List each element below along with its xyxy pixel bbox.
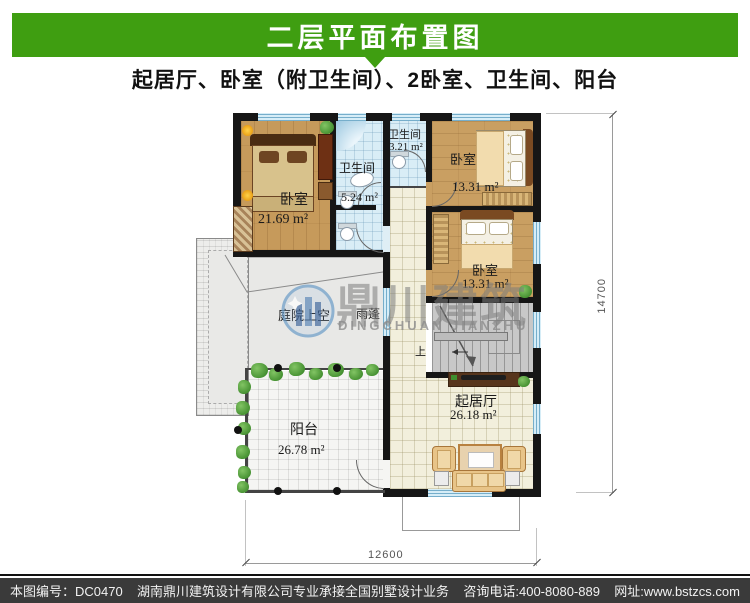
armchair xyxy=(502,446,526,472)
bedroom2-area: 13.31 m² xyxy=(452,179,499,195)
desk-1 xyxy=(318,182,333,200)
canopy-label: 雨蓬 xyxy=(356,305,380,322)
wardrobe-3 xyxy=(433,214,449,264)
armchair xyxy=(432,446,456,472)
column-dot xyxy=(333,487,341,495)
tv-cabinet xyxy=(448,372,520,387)
column-dot xyxy=(274,364,282,372)
bedroom2-label: 卧室 xyxy=(450,149,476,168)
bath2-label: 卫生间 xyxy=(388,126,421,142)
floor-plan-page: 二层平面布置图 起居厅、卧室（附卫生间）、2卧室、卫生间、阳台 xyxy=(0,0,750,603)
balcony-label: 阳台 xyxy=(290,419,318,439)
living-area: 26.18 m² xyxy=(450,407,497,423)
column-dot xyxy=(333,364,341,372)
balcony-area: 26.78 m² xyxy=(278,442,325,458)
bath1-label: 卫生间 xyxy=(339,159,375,176)
lamp-icon xyxy=(242,190,253,201)
sofa xyxy=(452,470,506,492)
bedroom1-area: 21.69 m² xyxy=(258,212,308,228)
bath2-area: 3.21 m² xyxy=(389,141,423,153)
wardrobe-1 xyxy=(318,134,333,180)
side-table xyxy=(434,471,449,486)
bedroom3-area: 13.31 m² xyxy=(462,276,509,292)
column-dot xyxy=(234,426,242,434)
courtyard-label: 庭院上空 xyxy=(278,305,330,324)
side-table xyxy=(505,471,520,486)
plan-linework xyxy=(0,0,750,603)
toilet-icon xyxy=(392,155,406,169)
column-dot xyxy=(274,487,282,495)
bed-2 xyxy=(476,129,533,186)
stairs-up-label: 上 xyxy=(415,343,426,359)
bedroom1-label: 卧室 xyxy=(280,189,308,209)
stair-railing xyxy=(434,332,508,341)
dresser-1 xyxy=(233,206,253,252)
toilet-icon xyxy=(340,227,354,241)
lamp-icon xyxy=(242,125,253,136)
bath1-area: 5.24 m² xyxy=(341,190,378,205)
